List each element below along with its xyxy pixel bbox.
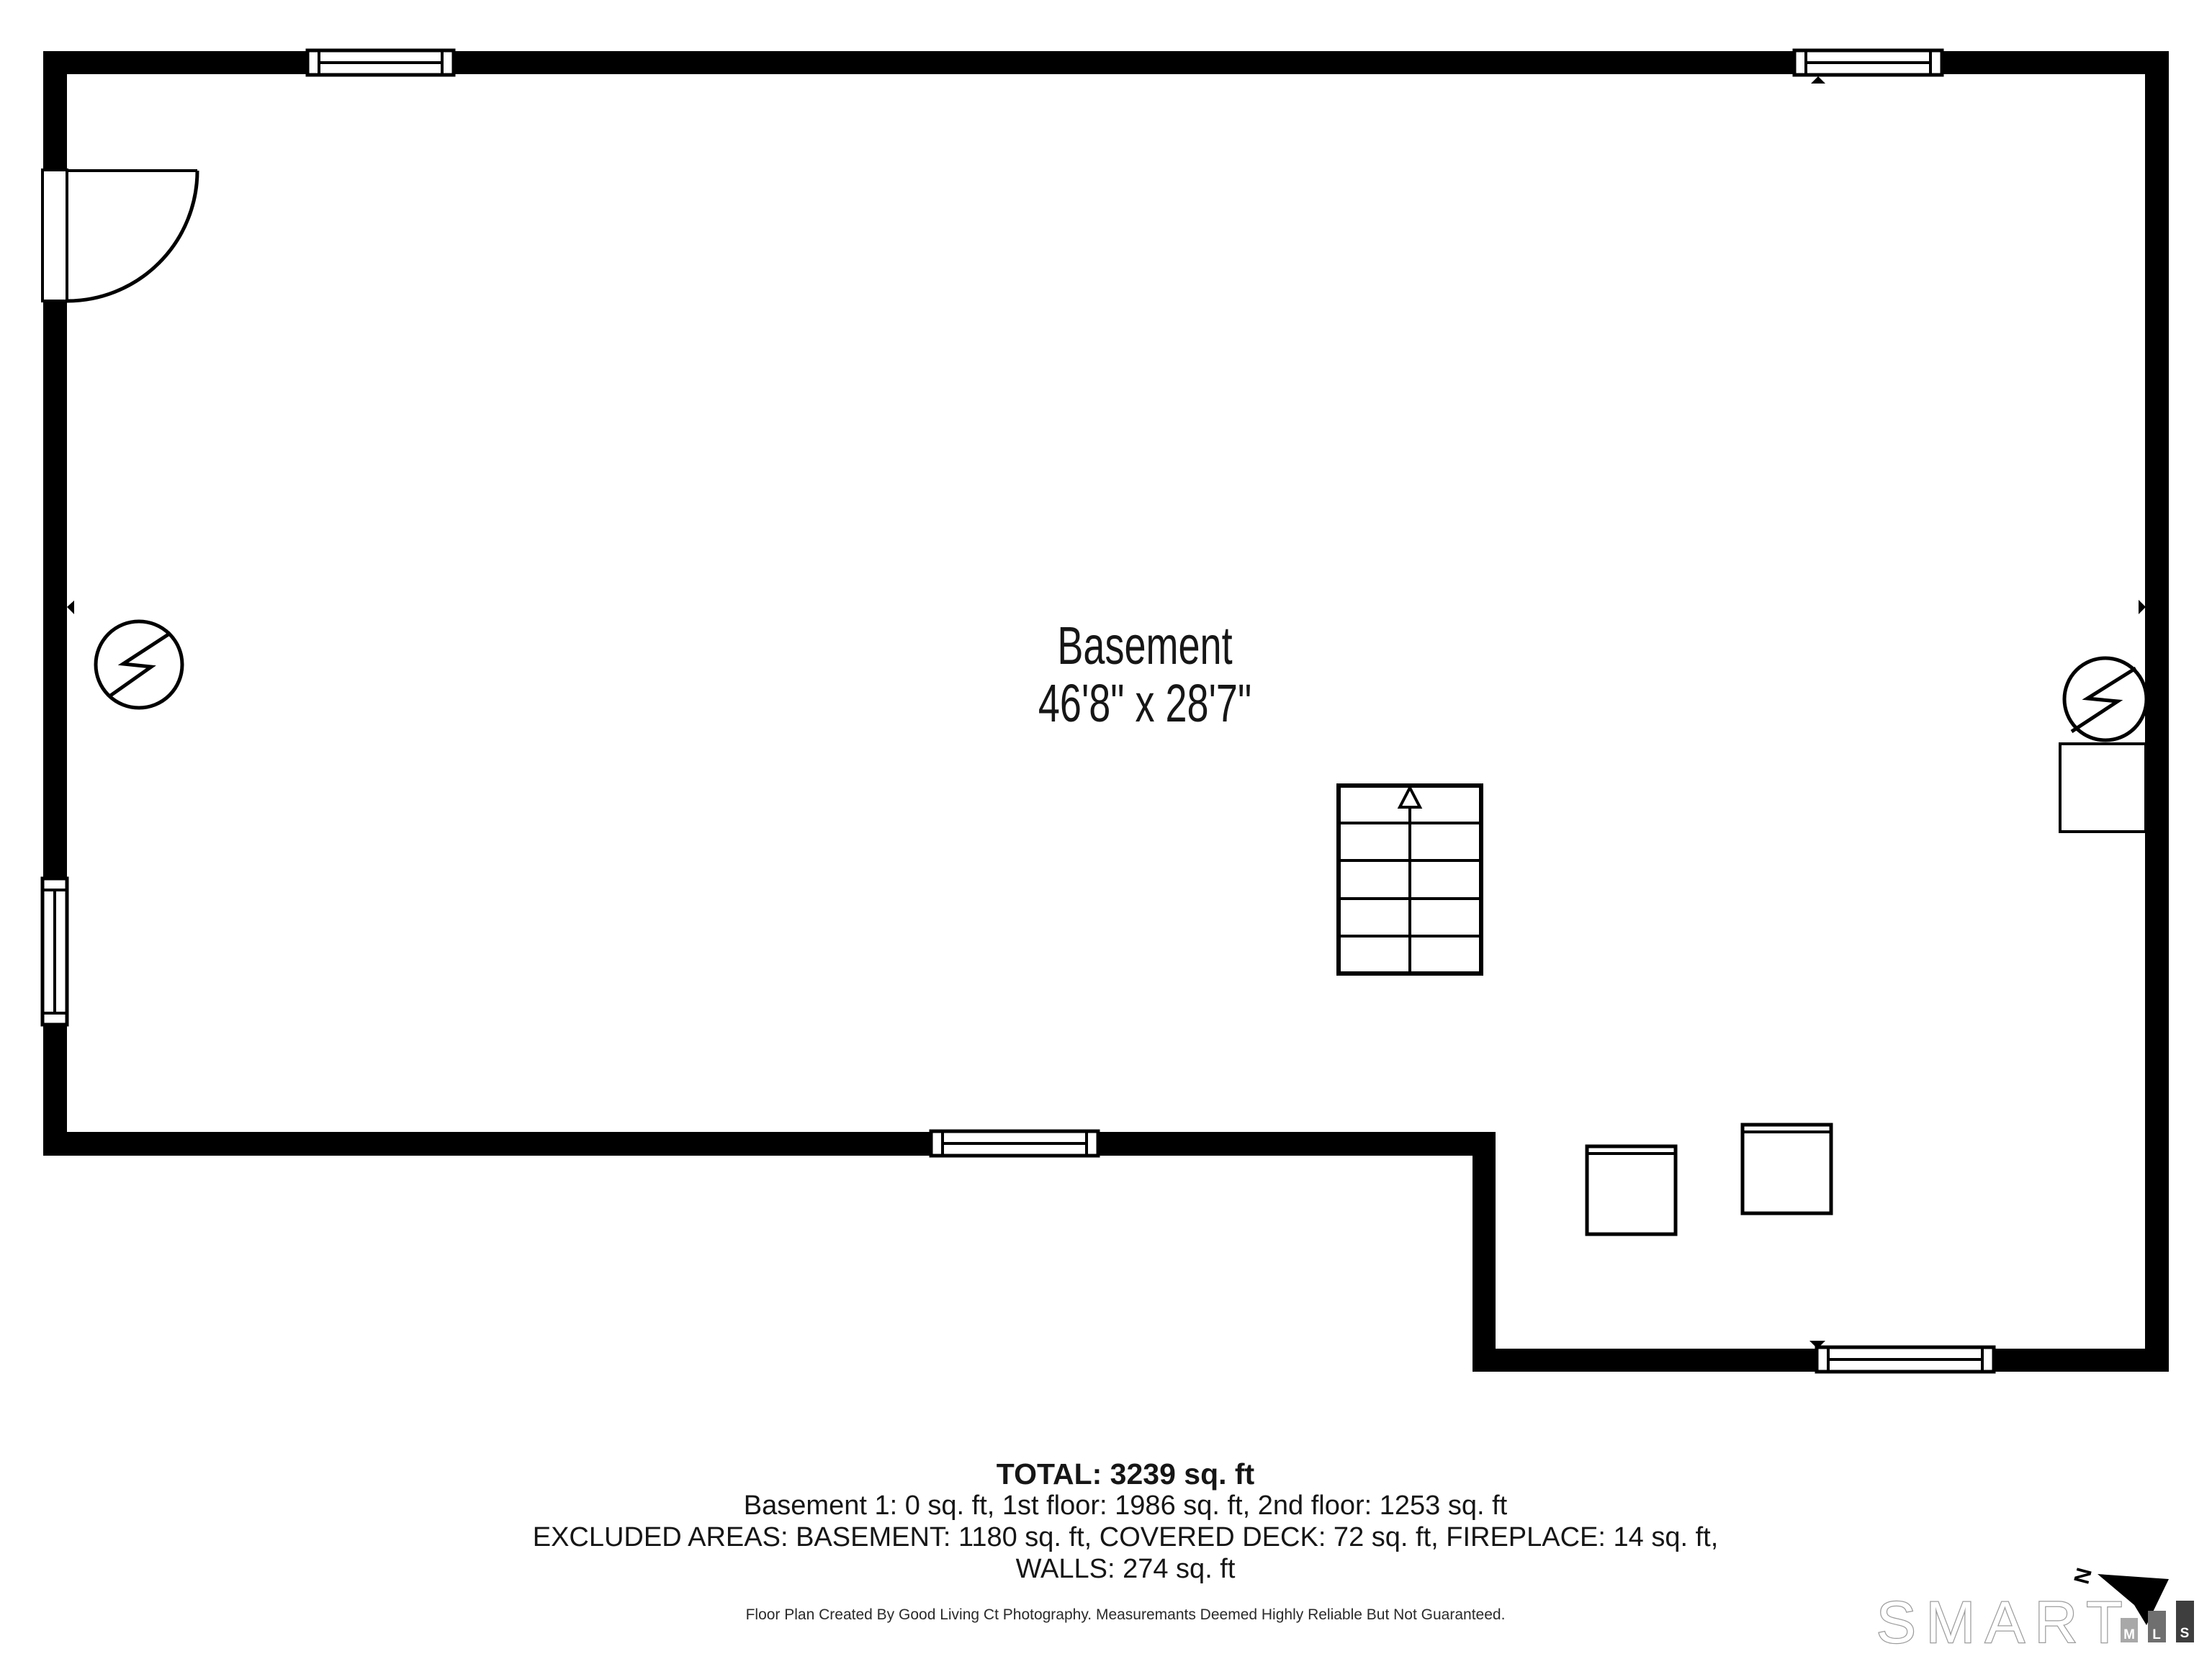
- window-left-wall: [42, 878, 67, 1025]
- door-swing-arc: [67, 171, 197, 301]
- disclaimer: Floor Plan Created By Good Living Ct Pho…: [746, 1606, 1506, 1624]
- appliance-right: [1743, 1125, 1831, 1213]
- appliance-outline: [1743, 1125, 1831, 1213]
- room-name: Basement: [1057, 615, 1232, 676]
- marker-arrow-up-icon: [1811, 76, 1825, 84]
- door: [42, 170, 197, 301]
- electrical-symbol-left: [96, 621, 182, 708]
- logo-letter-l: L: [2152, 1627, 2161, 1642]
- summary-excluded-areas: EXCLUDED AREAS: BASEMENT: 1180 sq. ft, C…: [533, 1522, 1719, 1553]
- electrical-symbol-right: [2064, 658, 2146, 740]
- floor-plan-drawing: N SMART M L S: [0, 0, 2212, 1659]
- summary-floors: Basement 1: 0 sq. ft, 1st floor: 1986 sq…: [744, 1491, 1507, 1521]
- floor-plan-page: N SMART M L S Basement 46'8" x 28'7" TOT…: [0, 0, 2212, 1659]
- summary-walls: WALLS: 274 sq. ft: [1016, 1554, 1236, 1585]
- window-top-left: [307, 50, 454, 75]
- marker-arrow-right-icon: [2139, 600, 2146, 614]
- room-dimensions: 46'8" x 28'7": [1038, 673, 1251, 734]
- north-label: N: [2070, 1565, 2097, 1586]
- appliance-outline: [1587, 1146, 1676, 1234]
- brand-wordmark: SMART: [1876, 1590, 2133, 1655]
- window-top-right: [1794, 50, 1942, 75]
- appliance-left: [1587, 1146, 1676, 1234]
- stairs: [1339, 786, 1481, 974]
- logo-letter-s: S: [2180, 1626, 2190, 1641]
- window-bottom-middle: [931, 1131, 1098, 1156]
- logo-letter-m: M: [2123, 1627, 2135, 1642]
- summary-total: TOTAL: 3239 sq. ft: [997, 1457, 1254, 1491]
- door-opening: [42, 170, 67, 301]
- window-bottom-right: [1817, 1347, 1994, 1372]
- marker-arrow-left-icon: [67, 601, 74, 614]
- utility-box-right-wall: [2060, 744, 2146, 832]
- utility-box: [2060, 744, 2146, 832]
